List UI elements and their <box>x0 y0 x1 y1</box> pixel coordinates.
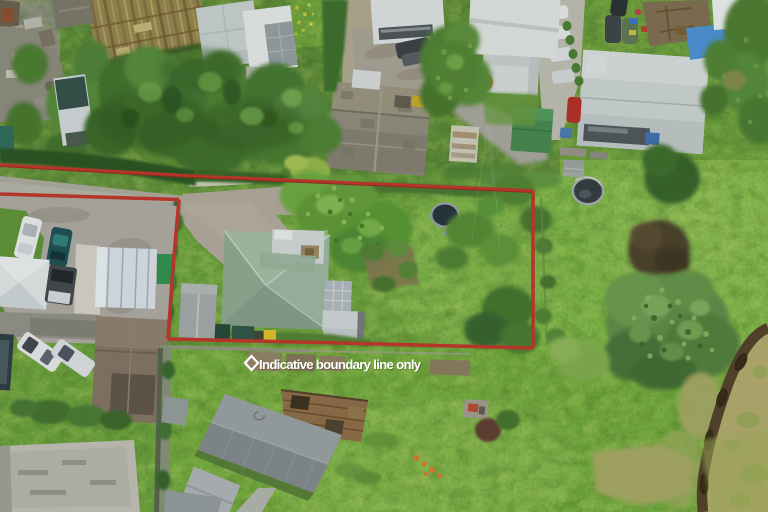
svg-text:Indicative boundary line only: Indicative boundary line only <box>259 357 422 372</box>
